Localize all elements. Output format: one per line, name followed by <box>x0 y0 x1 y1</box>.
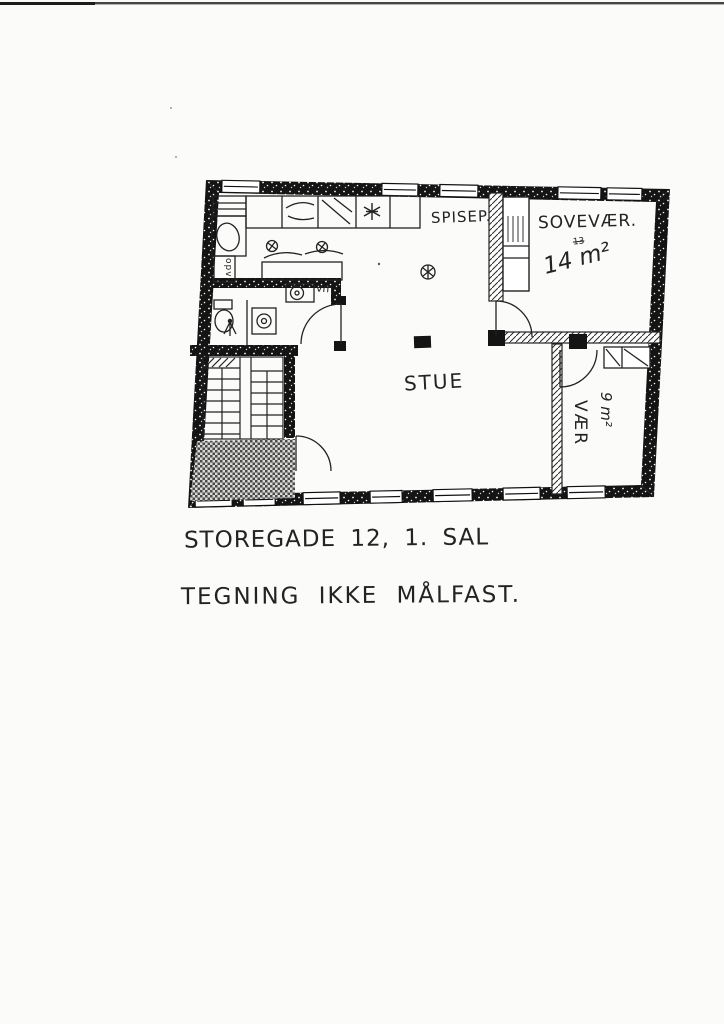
lamp-icon <box>421 265 435 279</box>
vaer-closet <box>604 347 650 368</box>
sink-basin <box>214 221 242 254</box>
shower-icon <box>224 319 236 336</box>
cooker-fan-icon <box>364 203 380 220</box>
caption-disclaimer: TEGNING IKKE MÅLFAST. <box>181 584 521 609</box>
kitchen-counter <box>246 196 420 228</box>
door-arc-bathroom <box>301 304 341 344</box>
stair-hatch <box>205 358 235 367</box>
floor-drain-icon <box>252 308 276 334</box>
wall-bath-stairs <box>190 345 298 356</box>
room-label-sovevaer: SOVEVÆR. <box>538 213 637 233</box>
kitchen-fixtures <box>212 196 435 282</box>
outlet-icon <box>267 241 278 252</box>
washing-machine-label: vm <box>316 282 334 294</box>
entry-landing <box>190 439 295 501</box>
room-label-stue: STUE <box>404 370 465 393</box>
caption-address: STOREGADE 12, 1. SAL <box>184 526 489 552</box>
duct-box <box>503 197 529 291</box>
kitchen-table <box>262 262 342 280</box>
room-area-vaer: 9 m² <box>598 392 613 427</box>
floorplan-drawing <box>0 0 724 1024</box>
bathroom-fixtures <box>214 284 314 346</box>
door-arc-stairs-stue <box>296 436 331 471</box>
scanned-floorplan-page: SPISEP. SOVEVÆR. 13 14 m² STUE VÆR 9 m² … <box>0 0 724 1024</box>
column <box>414 336 431 349</box>
wall-stairs-stue <box>284 356 295 438</box>
door-arc-vaer <box>560 350 597 387</box>
staircase <box>203 357 283 439</box>
room-label-vaer: VÆR <box>571 400 588 446</box>
room-label-spisep: SPISEP. <box>431 209 492 226</box>
dishwasher-label: opv <box>223 258 232 278</box>
